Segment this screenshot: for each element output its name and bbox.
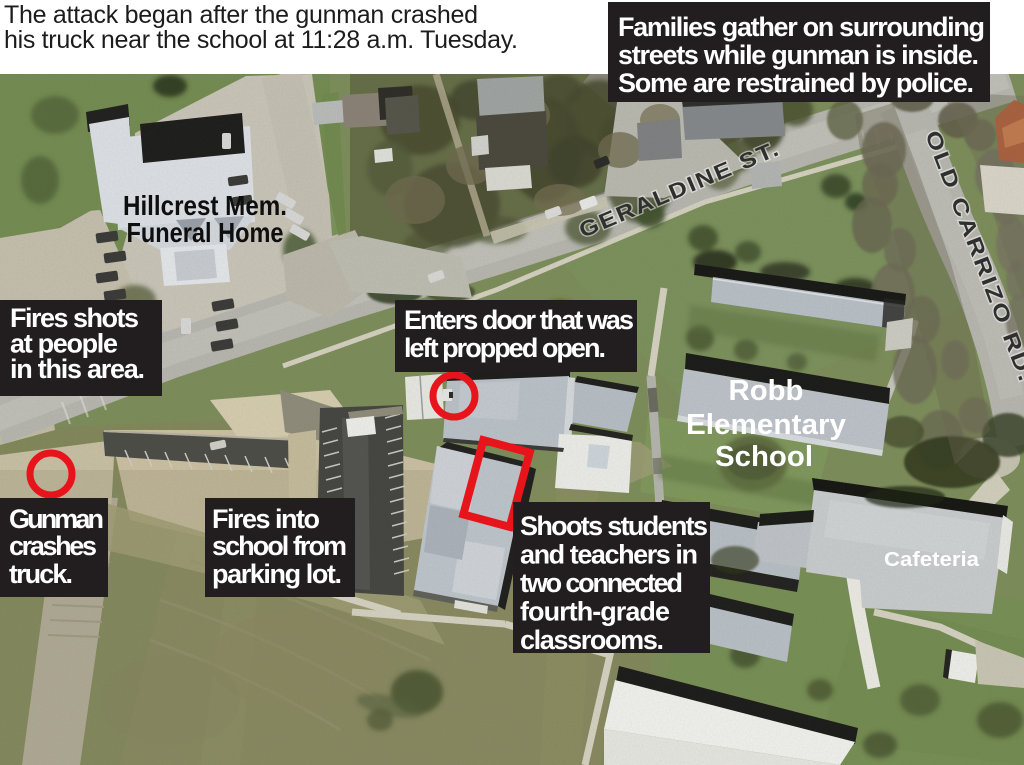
- svg-text:Enters door that was: Enters door that was: [404, 305, 634, 335]
- svg-text:The attack began after the gun: The attack began after the gunman crashe…: [4, 1, 478, 29]
- svg-text:parking lot.: parking lot.: [212, 559, 342, 589]
- svg-text:classrooms.: classrooms.: [520, 625, 664, 655]
- svg-text:fourth-grade: fourth-grade: [520, 597, 670, 627]
- svg-text:truck.: truck.: [9, 559, 73, 589]
- svg-text:streets while gunman is inside: streets while gunman is inside.: [618, 40, 979, 70]
- svg-text:Cafeteria: Cafeteria: [884, 548, 980, 571]
- svg-text:in this area.: in this area.: [10, 354, 145, 384]
- svg-text:his truck near the school at 1: his truck near the school at 11:28 a.m. …: [4, 26, 518, 54]
- svg-text:two connected: two connected: [520, 568, 683, 598]
- svg-text:Fires into: Fires into: [212, 504, 320, 534]
- svg-text:Shoots students: Shoots students: [520, 511, 708, 541]
- svg-text:Funeral Home: Funeral Home: [127, 217, 284, 248]
- svg-text:Elementary: Elementary: [686, 409, 846, 441]
- svg-text:School: School: [715, 441, 813, 473]
- svg-text:left propped open.: left propped open.: [404, 333, 606, 363]
- svg-text:Robb: Robb: [729, 375, 804, 407]
- svg-text:and teachers in: and teachers in: [520, 540, 698, 570]
- svg-text:Some are restrained by police.: Some are restrained by police.: [618, 68, 974, 98]
- svg-text:school from: school from: [212, 531, 347, 561]
- svg-text:crashes: crashes: [9, 531, 97, 561]
- svg-text:Families gather on surrounding: Families gather on surrounding: [618, 12, 985, 42]
- svg-text:Gunman: Gunman: [9, 504, 104, 534]
